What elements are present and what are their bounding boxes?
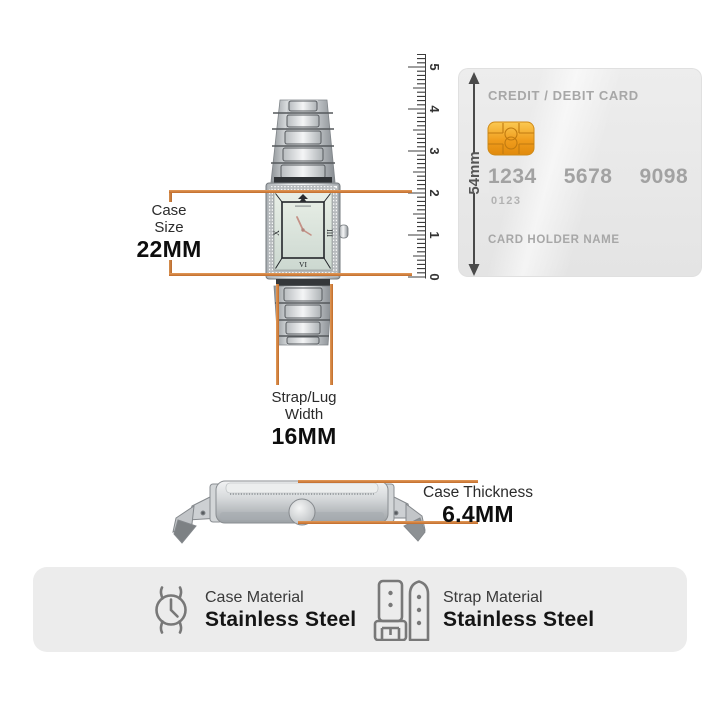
bracelet-top bbox=[271, 100, 335, 184]
card-number-group: 5678 bbox=[564, 165, 613, 189]
watch-strap-icon bbox=[372, 579, 430, 641]
ruler-tick-label: 2 bbox=[428, 186, 442, 200]
strap-width-label: Strap/Lug Width 16MM bbox=[242, 389, 366, 447]
strap-width-label-line2: Width bbox=[242, 406, 366, 423]
ruler-tick-label: 3 bbox=[428, 144, 442, 158]
ruler-ticks bbox=[408, 54, 425, 277]
strap-width-line-left bbox=[276, 284, 279, 385]
ruler-tick-label: 1 bbox=[428, 228, 442, 242]
side-case bbox=[210, 481, 394, 525]
strap-width-value: 16MM bbox=[242, 425, 366, 447]
strap-width-line-right bbox=[330, 284, 333, 385]
thickness-line-top bbox=[298, 480, 478, 483]
ruler-scale bbox=[395, 54, 445, 286]
case-thickness-label: Case Thickness 6.4MM bbox=[398, 484, 558, 525]
case-thickness-value: 6.4MM bbox=[398, 503, 558, 525]
watch-dial: X III VI bbox=[272, 192, 334, 270]
dial-numeral-left: X bbox=[272, 230, 281, 236]
watch-size-guide: X III VI bbox=[0, 0, 720, 721]
ruler: 0 1 2 3 4 5 bbox=[395, 54, 445, 286]
material-item-case: Case Material Stainless Steel bbox=[150, 567, 356, 652]
watch-case-icon bbox=[150, 585, 192, 635]
card-small-number: 0123 bbox=[491, 195, 521, 207]
credit-card: CREDIT / DEBIT CARD 1234 5678 9098 0123 … bbox=[458, 68, 702, 277]
dial-numeral-right: III bbox=[325, 229, 334, 237]
case-size-value: 22MM bbox=[129, 238, 209, 260]
dial-numeral-bottom: VI bbox=[299, 260, 307, 269]
material-label: Strap Material bbox=[443, 588, 594, 608]
card-height-label: 54mm bbox=[459, 153, 489, 193]
case-size-label: Case Size 22MM bbox=[129, 202, 209, 260]
ruler-tick-label: 5 bbox=[428, 60, 442, 74]
material-label: Case Material bbox=[205, 588, 356, 608]
watch-front-view: X III VI bbox=[238, 88, 368, 350]
materials-band: Case Material Stainless Steel Strap Mate… bbox=[33, 567, 687, 652]
material-item-strap: Strap Material Stainless Steel bbox=[372, 567, 594, 652]
card-number-group: 9098 bbox=[639, 165, 688, 189]
case-size-line-top bbox=[169, 190, 412, 193]
watch-crown bbox=[340, 225, 349, 238]
card-height-arrow: 54mm bbox=[462, 72, 486, 276]
card-number-group: 1234 bbox=[488, 165, 537, 189]
case-size-label-line2: Size bbox=[129, 219, 209, 236]
strap-width-label-line1: Strap/Lug bbox=[242, 389, 366, 406]
bracelet-bottom bbox=[274, 279, 332, 345]
material-value: Stainless Steel bbox=[205, 608, 356, 632]
card-number: 1234 5678 9098 bbox=[488, 165, 688, 189]
card-holder-label: CARD HOLDER NAME bbox=[488, 234, 620, 246]
card-chip-icon bbox=[487, 121, 535, 156]
material-value: Stainless Steel bbox=[443, 608, 594, 632]
ruler-tick-label: 4 bbox=[428, 102, 442, 116]
case-size-line-bottom bbox=[169, 273, 412, 276]
case-size-label-line1: Case bbox=[129, 202, 209, 219]
case-thickness-text: Case Thickness bbox=[398, 484, 558, 501]
card-title: CREDIT / DEBIT CARD bbox=[488, 88, 639, 103]
ruler-tick-label: 0 bbox=[428, 270, 442, 284]
watch-case: X III VI bbox=[266, 183, 348, 279]
